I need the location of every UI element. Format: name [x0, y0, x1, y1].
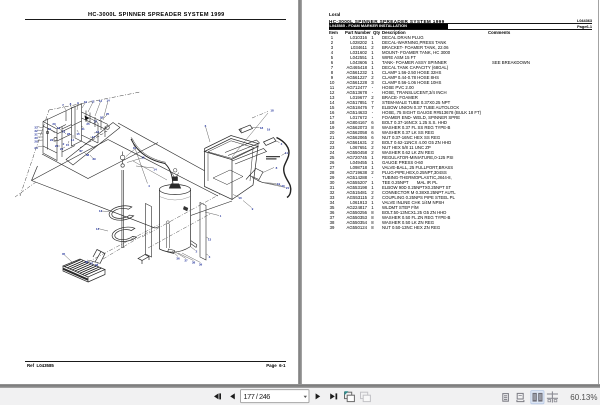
svg-text:37: 37	[184, 259, 188, 263]
svg-text:13: 13	[99, 209, 103, 213]
svg-text:29: 29	[34, 140, 38, 144]
svg-text:21: 21	[48, 127, 52, 131]
svg-text:31: 31	[81, 127, 85, 131]
svg-text:18: 18	[270, 109, 274, 113]
svg-text:11: 11	[91, 100, 95, 104]
svg-text:21: 21	[286, 186, 290, 190]
svg-text:27: 27	[94, 120, 98, 124]
svg-text:36: 36	[176, 257, 180, 261]
svg-text:19: 19	[267, 128, 271, 132]
svg-text:13: 13	[96, 227, 100, 231]
svg-text:28: 28	[67, 132, 71, 136]
svg-text:18: 18	[62, 130, 66, 134]
svg-text:3: 3	[209, 255, 211, 259]
svg-text:39: 39	[92, 157, 96, 161]
svg-text:1: 1	[220, 214, 222, 218]
svg-text:15: 15	[141, 156, 145, 160]
svg-text:12: 12	[133, 146, 137, 150]
svg-text:9: 9	[252, 207, 254, 211]
svg-text:24: 24	[60, 147, 64, 151]
svg-text:15: 15	[66, 143, 70, 147]
svg-text:25: 25	[86, 122, 90, 126]
svg-text:19: 19	[57, 126, 61, 130]
svg-text:22: 22	[50, 138, 54, 142]
svg-text:177 / 246: 177 / 246	[244, 392, 271, 401]
svg-text:23: 23	[55, 144, 59, 148]
svg-text:37: 37	[79, 149, 83, 153]
svg-text:11: 11	[285, 151, 289, 155]
svg-text:3: 3	[281, 142, 283, 146]
svg-text:10: 10	[84, 100, 88, 104]
svg-text:10: 10	[238, 196, 242, 200]
svg-text:38: 38	[192, 261, 196, 265]
svg-text:16: 16	[96, 130, 100, 134]
svg-text:39: 39	[199, 263, 203, 267]
svg-text:6: 6	[205, 124, 207, 128]
svg-text:7: 7	[62, 103, 64, 107]
svg-text:20: 20	[281, 184, 285, 188]
svg-text:36: 36	[85, 260, 89, 264]
svg-text:35: 35	[62, 252, 66, 256]
svg-text:38: 38	[95, 263, 99, 267]
svg-text:12: 12	[99, 99, 103, 103]
svg-text:17: 17	[92, 135, 96, 139]
svg-text:38: 38	[86, 153, 90, 157]
svg-text:8: 8	[276, 166, 278, 170]
svg-text:15: 15	[76, 132, 80, 136]
svg-text:20: 20	[52, 122, 56, 126]
svg-text:25: 25	[106, 112, 110, 116]
svg-text:14: 14	[71, 138, 75, 142]
svg-text:2: 2	[196, 250, 198, 254]
svg-text:9: 9	[77, 101, 79, 105]
svg-text:24: 24	[34, 146, 38, 150]
svg-text:4: 4	[148, 184, 150, 188]
svg-text:14: 14	[106, 99, 110, 103]
svg-text:14: 14	[153, 168, 157, 172]
svg-text:26: 26	[100, 116, 104, 120]
svg-text:8: 8	[70, 102, 72, 106]
svg-text:60.13%: 60.13%	[570, 393, 597, 402]
svg-text:2: 2	[63, 142, 65, 146]
svg-text:18: 18	[260, 126, 264, 130]
svg-text:13: 13	[208, 238, 212, 242]
svg-text:37: 37	[90, 262, 94, 266]
svg-text:19: 19	[277, 182, 281, 186]
